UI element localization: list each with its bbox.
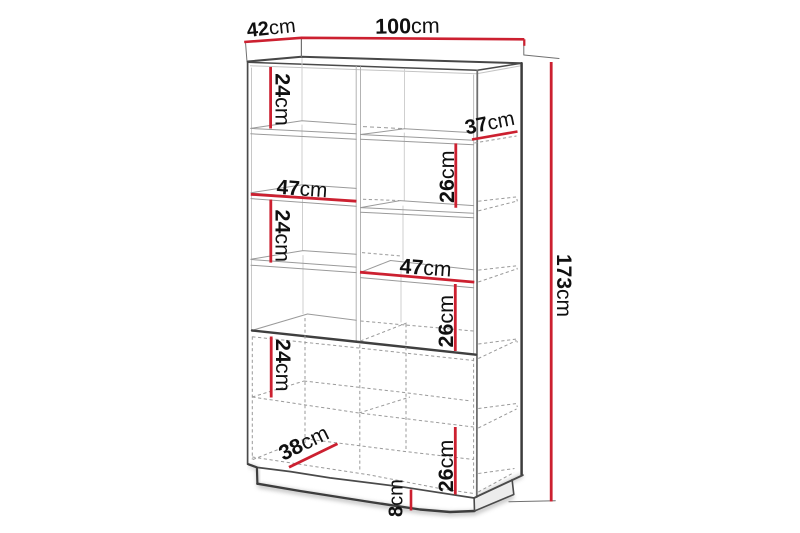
svg-text:8cm: 8cm	[386, 479, 408, 517]
svg-text:24cm: 24cm	[271, 210, 295, 263]
svg-text:47cm: 47cm	[276, 176, 328, 202]
svg-text:26cm: 26cm	[435, 150, 459, 203]
svg-text:26cm: 26cm	[434, 440, 458, 493]
svg-text:47cm: 47cm	[399, 255, 452, 282]
svg-text:24cm: 24cm	[271, 339, 295, 392]
svg-text:173cm: 173cm	[552, 254, 575, 317]
svg-text:24cm: 24cm	[271, 73, 295, 126]
svg-text:100cm: 100cm	[375, 14, 440, 39]
svg-text:26cm: 26cm	[434, 295, 458, 348]
